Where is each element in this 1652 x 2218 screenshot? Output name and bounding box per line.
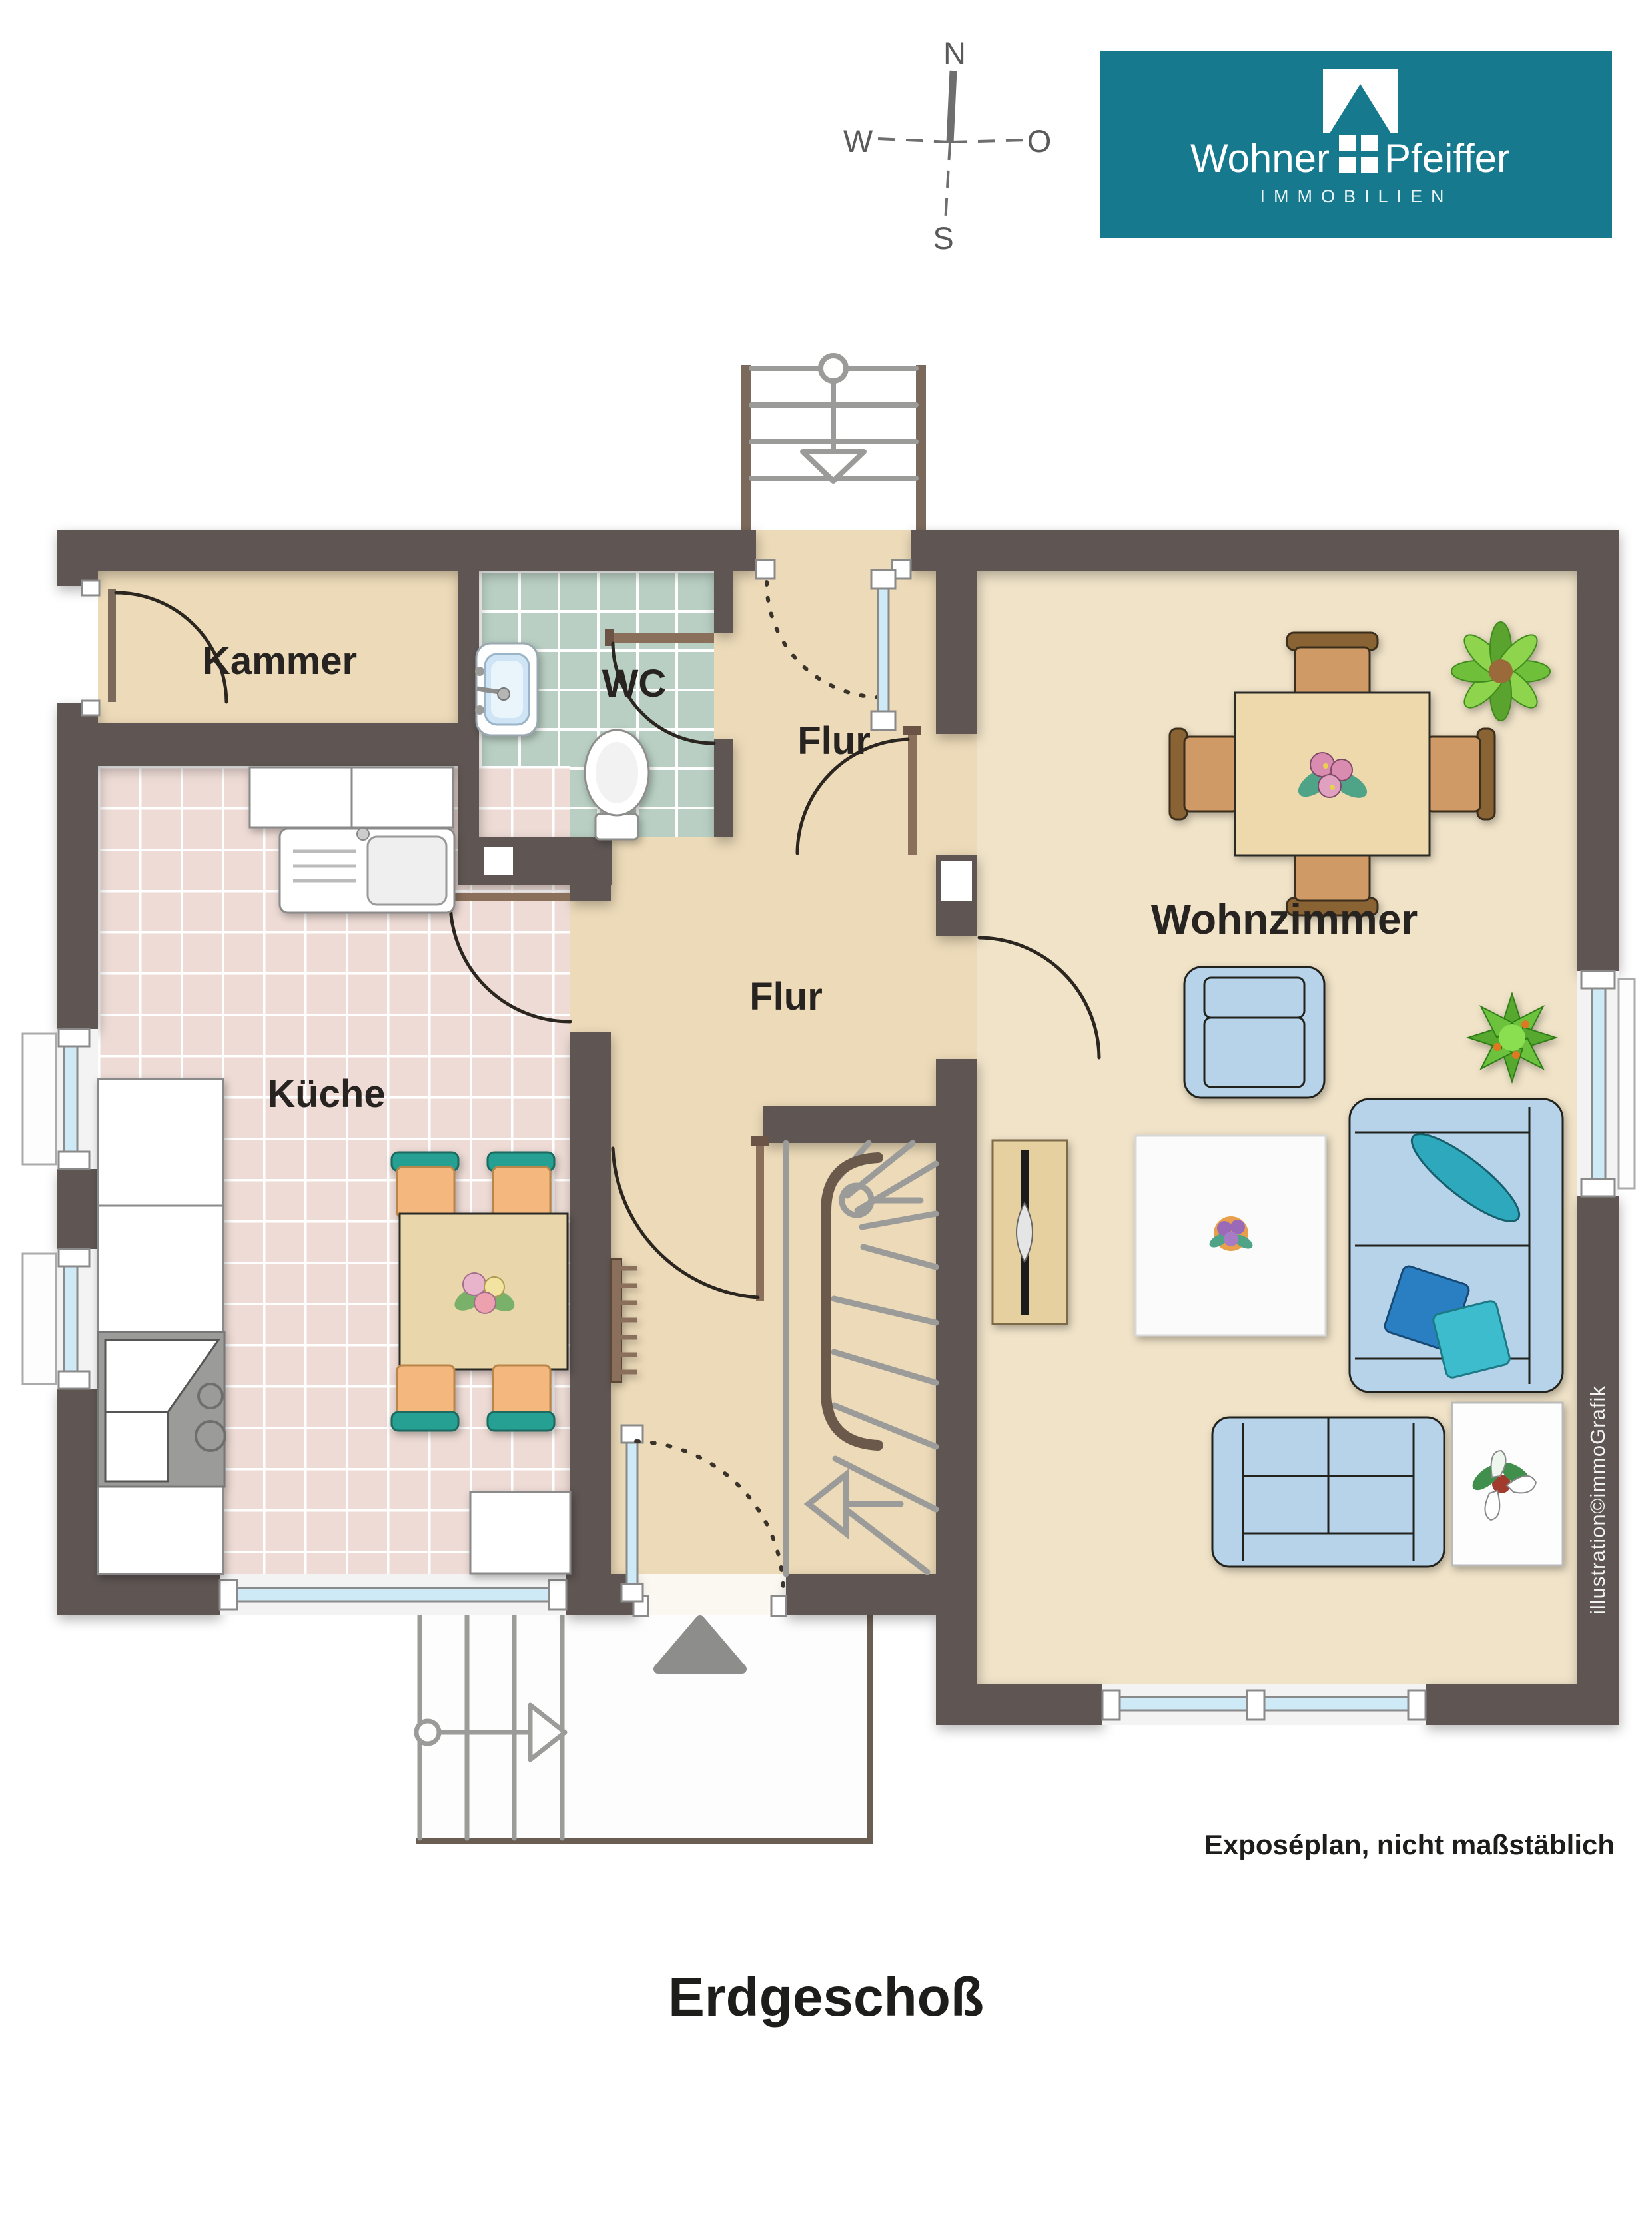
- label-wohnzimmer: Wohnzimmer: [1151, 895, 1418, 943]
- label-flur: Flur: [749, 975, 823, 1018]
- compass-west-label: W: [843, 123, 873, 159]
- wall-shaft-flur: [941, 861, 972, 901]
- entrance-glass-panel: [878, 586, 889, 714]
- window-kueche-left-1: [23, 1029, 98, 1169]
- tv-sideboard: [993, 1140, 1067, 1324]
- window-kueche-bottom: [220, 1574, 566, 1615]
- wc-sink: [475, 643, 538, 735]
- compass-icon: N S W O: [843, 35, 1051, 256]
- label-kammer: Kammer: [203, 639, 357, 683]
- window-wohnzimmer-right: [1577, 971, 1635, 1196]
- entrance-porch: [416, 1615, 873, 1845]
- front-door-glass-panel: [627, 1440, 637, 1587]
- sofa-pillow-teal: [1432, 1300, 1511, 1379]
- wall-shaft-wc: [484, 847, 513, 875]
- kitchen-stove: [98, 1332, 225, 1487]
- kitchen-cabinet-small: [470, 1492, 570, 1573]
- compass-north-label: N: [943, 35, 966, 71]
- label-flur-top: Flur: [797, 719, 871, 763]
- label-kueche: Küche: [267, 1072, 385, 1116]
- armchair: [1184, 967, 1324, 1098]
- sofa-right: [1350, 1099, 1563, 1392]
- logo-house-icon: [1323, 69, 1398, 133]
- scale-disclaimer: Exposéplan, nicht maßstäblich: [1204, 1829, 1615, 1860]
- window-kueche-left-2: [23, 1249, 98, 1389]
- floorplan-page: N S W O Wohner Pfeiffer IMMOBILIEN: [0, 0, 1652, 2218]
- window-wohnzimmer-bottom: [1102, 1684, 1426, 1725]
- sofa-bottom: [1212, 1417, 1444, 1567]
- plant-succulent: [1468, 994, 1556, 1082]
- logo-name-first: Wohner: [1190, 136, 1330, 181]
- exterior-stairs-top: [741, 356, 926, 530]
- logo-name-second: Pfeiffer: [1384, 136, 1510, 181]
- illustration-credit: illustration©immoGrafik: [1586, 1385, 1609, 1615]
- kitchen-counter-left: [98, 1079, 223, 1574]
- logo-tagline: IMMOBILIEN: [1260, 186, 1452, 206]
- coffee-table-rug: [1136, 1136, 1326, 1335]
- plant-large: [1451, 622, 1550, 721]
- kitchen-sink-unit: [250, 767, 454, 913]
- page-title: Erdgeschoß: [668, 1967, 984, 2028]
- company-logo: Wohner Pfeiffer IMMOBILIEN: [1100, 51, 1612, 238]
- compass-east-label: O: [1027, 123, 1052, 159]
- label-wc: WC: [602, 662, 667, 705]
- compass-south-label: S: [933, 220, 953, 256]
- side-table: [1452, 1403, 1563, 1565]
